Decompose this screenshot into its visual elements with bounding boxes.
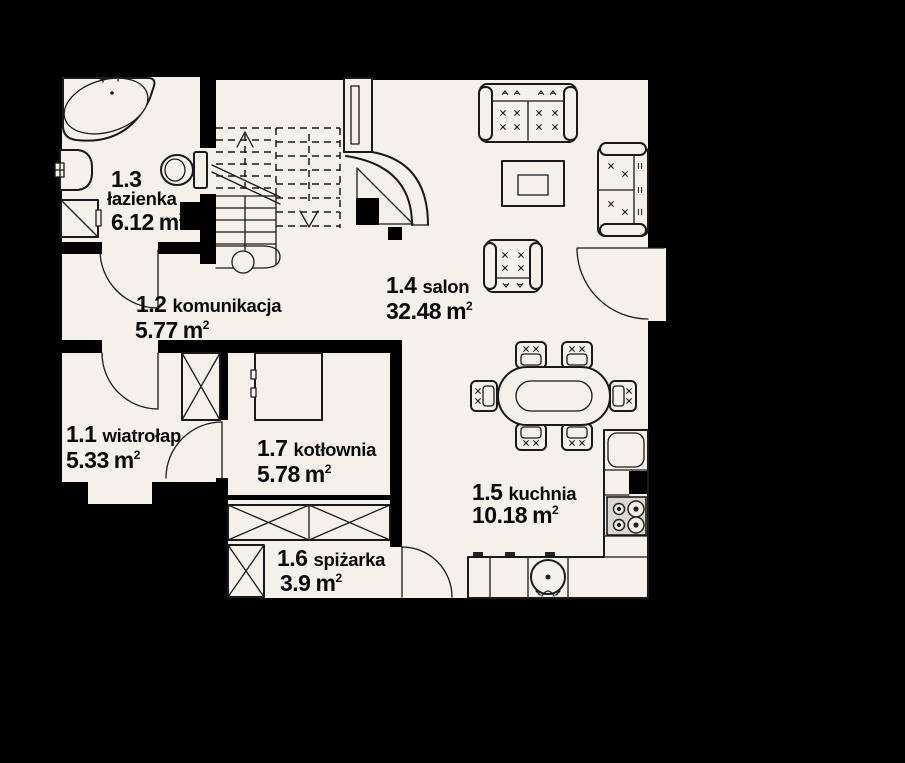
- svg-text:1.2komunikacja: 1.2komunikacja: [136, 291, 282, 317]
- dining-table: [498, 367, 610, 425]
- kitchen-sink-icon: [531, 560, 565, 596]
- svg-text:5.78m2: 5.78m2: [257, 461, 332, 487]
- washbasin-icon: [55, 150, 92, 190]
- stove-icon: [607, 497, 646, 535]
- wardrobe-icon: [182, 353, 220, 420]
- wall-kotlownia-right: [390, 353, 402, 547]
- chimney-icon: [344, 78, 372, 152]
- wall-bathroom-bottom-left: [56, 242, 102, 254]
- armchair-icon: [484, 240, 542, 292]
- toilet-icon: [161, 152, 207, 188]
- fridge-icon: [608, 433, 644, 467]
- dining-chair: [562, 424, 592, 450]
- svg-text:5.33m2: 5.33m2: [66, 447, 141, 473]
- washing-machine-icon: [61, 200, 101, 237]
- entrance-recess: [88, 482, 152, 504]
- svg-text:1.6spiżarka: 1.6spiżarka: [277, 545, 386, 571]
- bathroom-door-opening: [100, 242, 158, 254]
- wall-spizarka-divider: [228, 495, 390, 500]
- wall-wiatrolap-bottom-right: [152, 482, 228, 503]
- dining-chair: [516, 424, 546, 450]
- floor-plan-drawing: 1.3 łazienka 6.12m2 1.2komunikacja 5.77m…: [0, 0, 905, 763]
- sofa-2-seat-icon: [598, 143, 648, 236]
- terrace-door-opening: [648, 248, 666, 321]
- svg-text:1.4salon: 1.4salon: [386, 272, 469, 298]
- svg-text:10.18m2: 10.18m2: [472, 502, 559, 528]
- wall-bathroom-bottom-right: [158, 242, 216, 254]
- room-label-salon: 1.4salon 32.48m2: [386, 272, 473, 324]
- wall-bathroom-pillar: [180, 202, 216, 230]
- dining-chair: [562, 342, 592, 368]
- svg-text:5.77m2: 5.77m2: [135, 317, 210, 343]
- svg-text:6.12m2: 6.12m2: [111, 209, 186, 235]
- svg-text:łazienka: łazienka: [107, 188, 178, 209]
- boiler-icon: [251, 353, 322, 420]
- kitchen-vent-shaft: [629, 471, 647, 494]
- wall-komunikacja-bottom-left: [56, 340, 102, 353]
- wall-wiatrolap-bottom-left: [56, 482, 88, 503]
- dining-chair: [471, 381, 497, 411]
- svg-text:1.1wiatrołap: 1.1wiatrołap: [66, 421, 181, 447]
- svg-text:1.7kotłownia: 1.7kotłownia: [257, 435, 377, 461]
- svg-text:32.48m2: 32.48m2: [386, 298, 473, 324]
- dining-chair: [610, 381, 636, 411]
- dining-chair: [516, 342, 546, 368]
- sofa-3-seat-icon: [479, 84, 577, 142]
- floor-plan-page: 1.3 łazienka 6.12m2 1.2komunikacja 5.77m…: [0, 0, 905, 763]
